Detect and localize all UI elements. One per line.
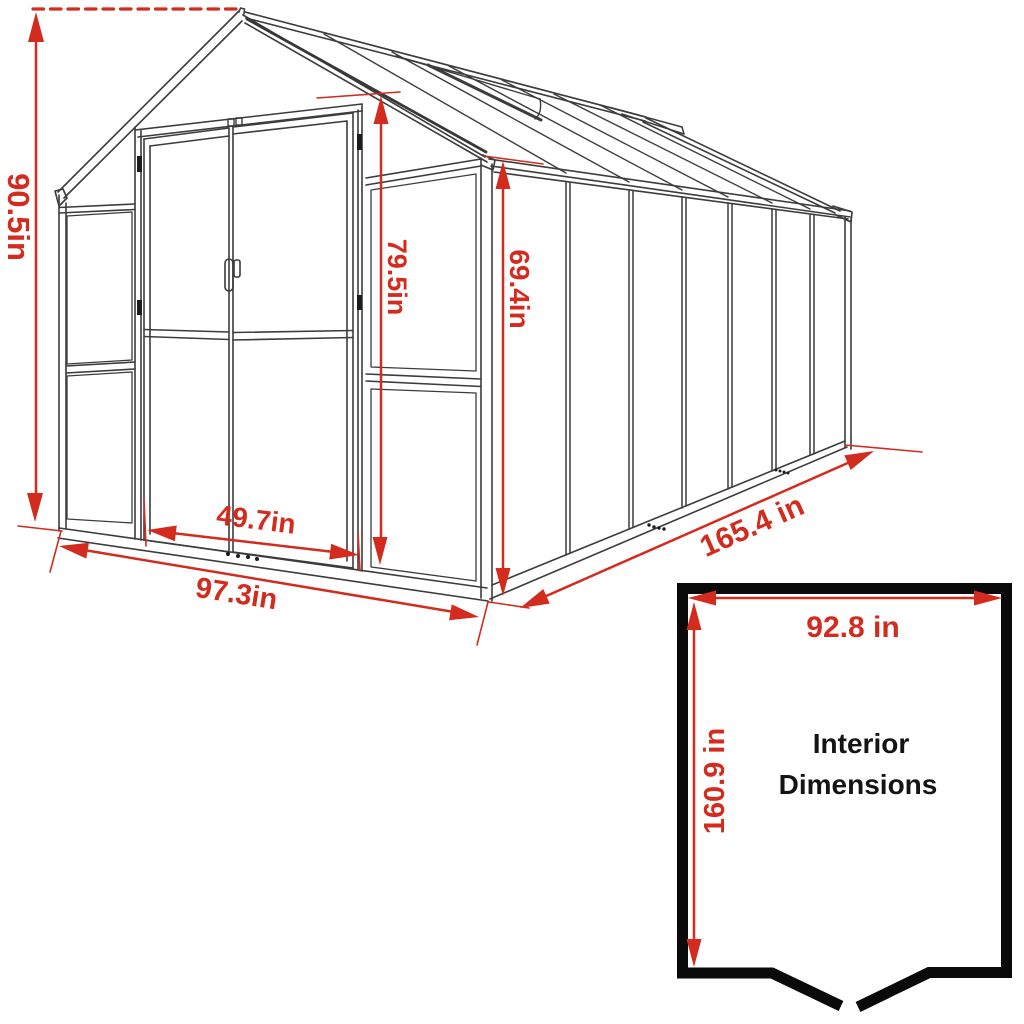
svg-text:49.7in: 49.7in [215,499,298,539]
svg-text:79.5in: 79.5in [382,239,412,316]
svg-text:69.4in: 69.4in [504,249,535,328]
svg-text:92.8 in: 92.8 in [806,611,899,644]
svg-text:165.4 in: 165.4 in [695,489,809,564]
svg-text:97.3in: 97.3in [193,572,279,616]
svg-text:160.9 in: 160.9 in [699,728,731,834]
svg-text:Dimensions: Dimensions [779,769,938,800]
svg-text:Interior: Interior [813,728,910,759]
svg-text:90.5in: 90.5in [1,173,36,261]
